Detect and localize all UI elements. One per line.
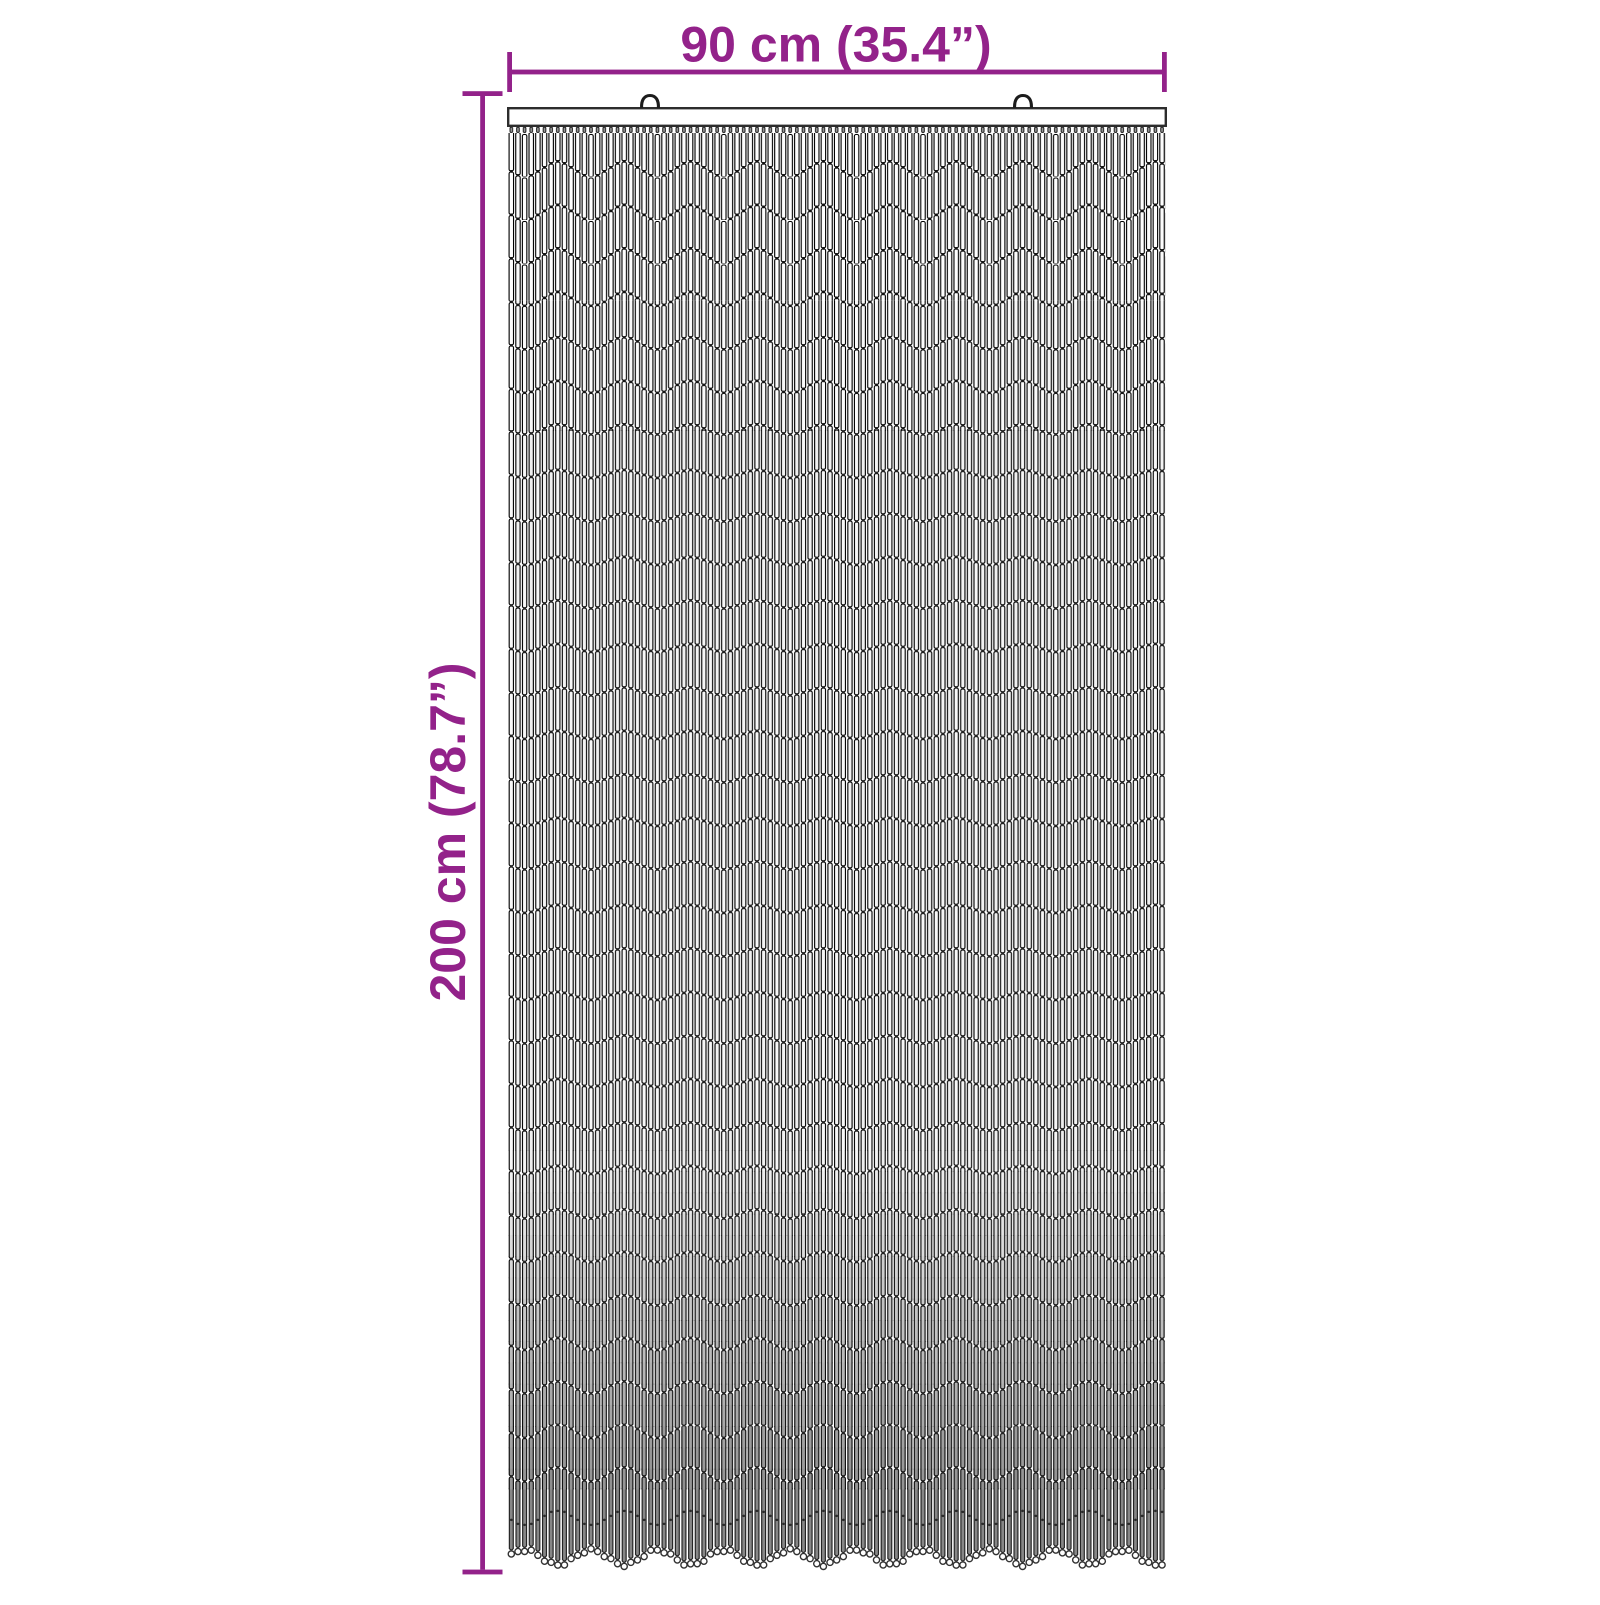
svg-text:200 cm (78.7”): 200 cm (78.7”): [420, 662, 476, 1001]
svg-text:90 cm (35.4”): 90 cm (35.4”): [680, 17, 991, 73]
